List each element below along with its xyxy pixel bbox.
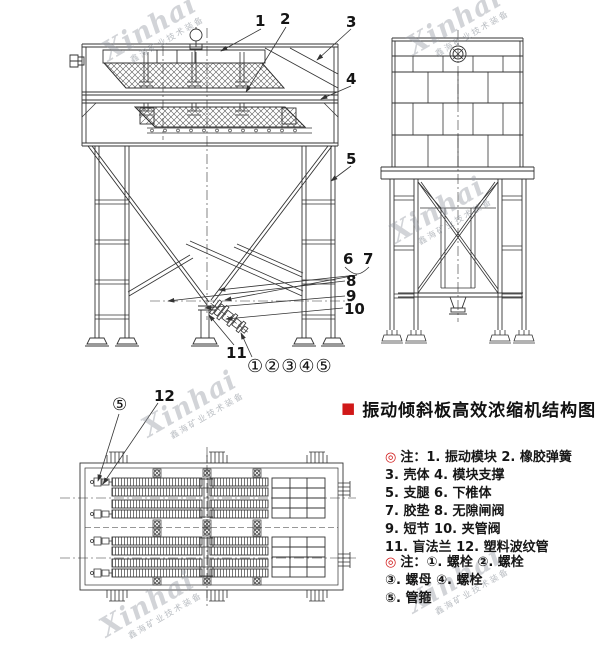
drawing-title: 振动倾斜板高效浓缩机结构图 bbox=[362, 396, 596, 421]
drawing-title-block: ■ 振动倾斜板高效浓缩机结构图 bbox=[341, 396, 596, 421]
legend-line: ⑤. 管箍 bbox=[385, 590, 524, 608]
legend-line: ③. 螺母 ④. 螺栓 bbox=[385, 572, 524, 590]
legend-line: 7. 胶垫 8. 无隙闸阀 bbox=[385, 503, 572, 521]
parts-legend: ◎注：1. 振动模块 2. 橡胶弹簧 3. 壳体 4. 模块支撑 5. 支腿 6… bbox=[385, 449, 572, 557]
fastener-legend: ◎注：①. 螺栓 ②. 螺栓 ③. 螺母 ④. 螺栓 ⑤. 管箍 bbox=[385, 554, 524, 608]
callout-5: 5 bbox=[346, 152, 356, 167]
callout-fastener-row: ①②③④⑤ bbox=[247, 358, 333, 376]
callout-1: 1 bbox=[255, 14, 265, 29]
callout-leader-lines bbox=[98, 27, 369, 484]
front-view-drawing bbox=[70, 27, 352, 346]
title-marker-square: ■ bbox=[341, 401, 355, 416]
callout-clamp-5: ⑤ bbox=[112, 397, 127, 414]
callout-11: 11 bbox=[226, 346, 247, 361]
callout-3: 3 bbox=[346, 15, 356, 30]
note-marker-icon: ◎ bbox=[385, 555, 396, 570]
legend-line: 9. 短节 10. 夹管阀 bbox=[385, 521, 572, 539]
legend-line: ◎注：①. 螺栓 ②. 螺栓 bbox=[385, 554, 524, 572]
legend-line: ◎注：1. 振动模块 2. 橡胶弹簧 bbox=[385, 449, 572, 467]
callout-6: 6 bbox=[343, 252, 353, 267]
callout-4: 4 bbox=[346, 72, 356, 87]
legend-line: 3. 壳体 4. 模块支撑 bbox=[385, 467, 572, 485]
callout-2: 2 bbox=[280, 12, 290, 27]
side-view-drawing bbox=[381, 30, 535, 343]
drawing-sheet: Xinhai 鑫海矿业技术装备 Xinhai 鑫海矿业技术装备 Xinhai 鑫… bbox=[0, 0, 606, 650]
plan-view-drawing bbox=[60, 447, 356, 608]
callout-10: 10 bbox=[344, 302, 365, 317]
note-marker-icon: ◎ bbox=[385, 450, 396, 465]
callout-12: 12 bbox=[154, 389, 175, 404]
callout-7: 7 bbox=[363, 252, 373, 267]
legend-line: 5. 支腿 6. 下椎体 bbox=[385, 485, 572, 503]
